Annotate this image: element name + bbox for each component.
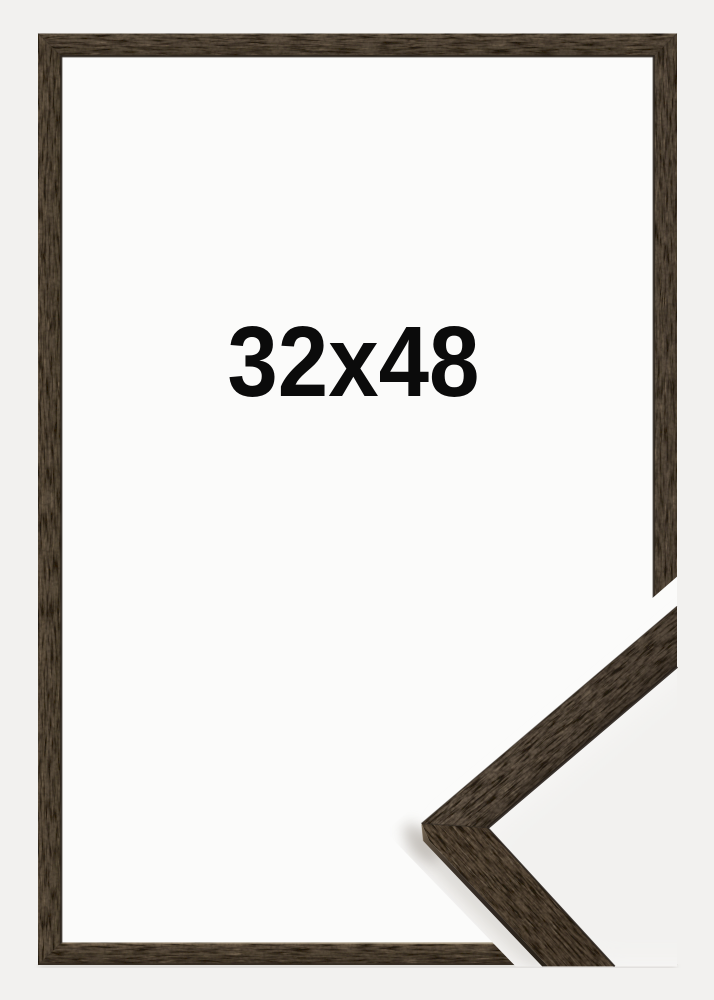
svg-text:32x48: 32x48 [227,306,479,418]
